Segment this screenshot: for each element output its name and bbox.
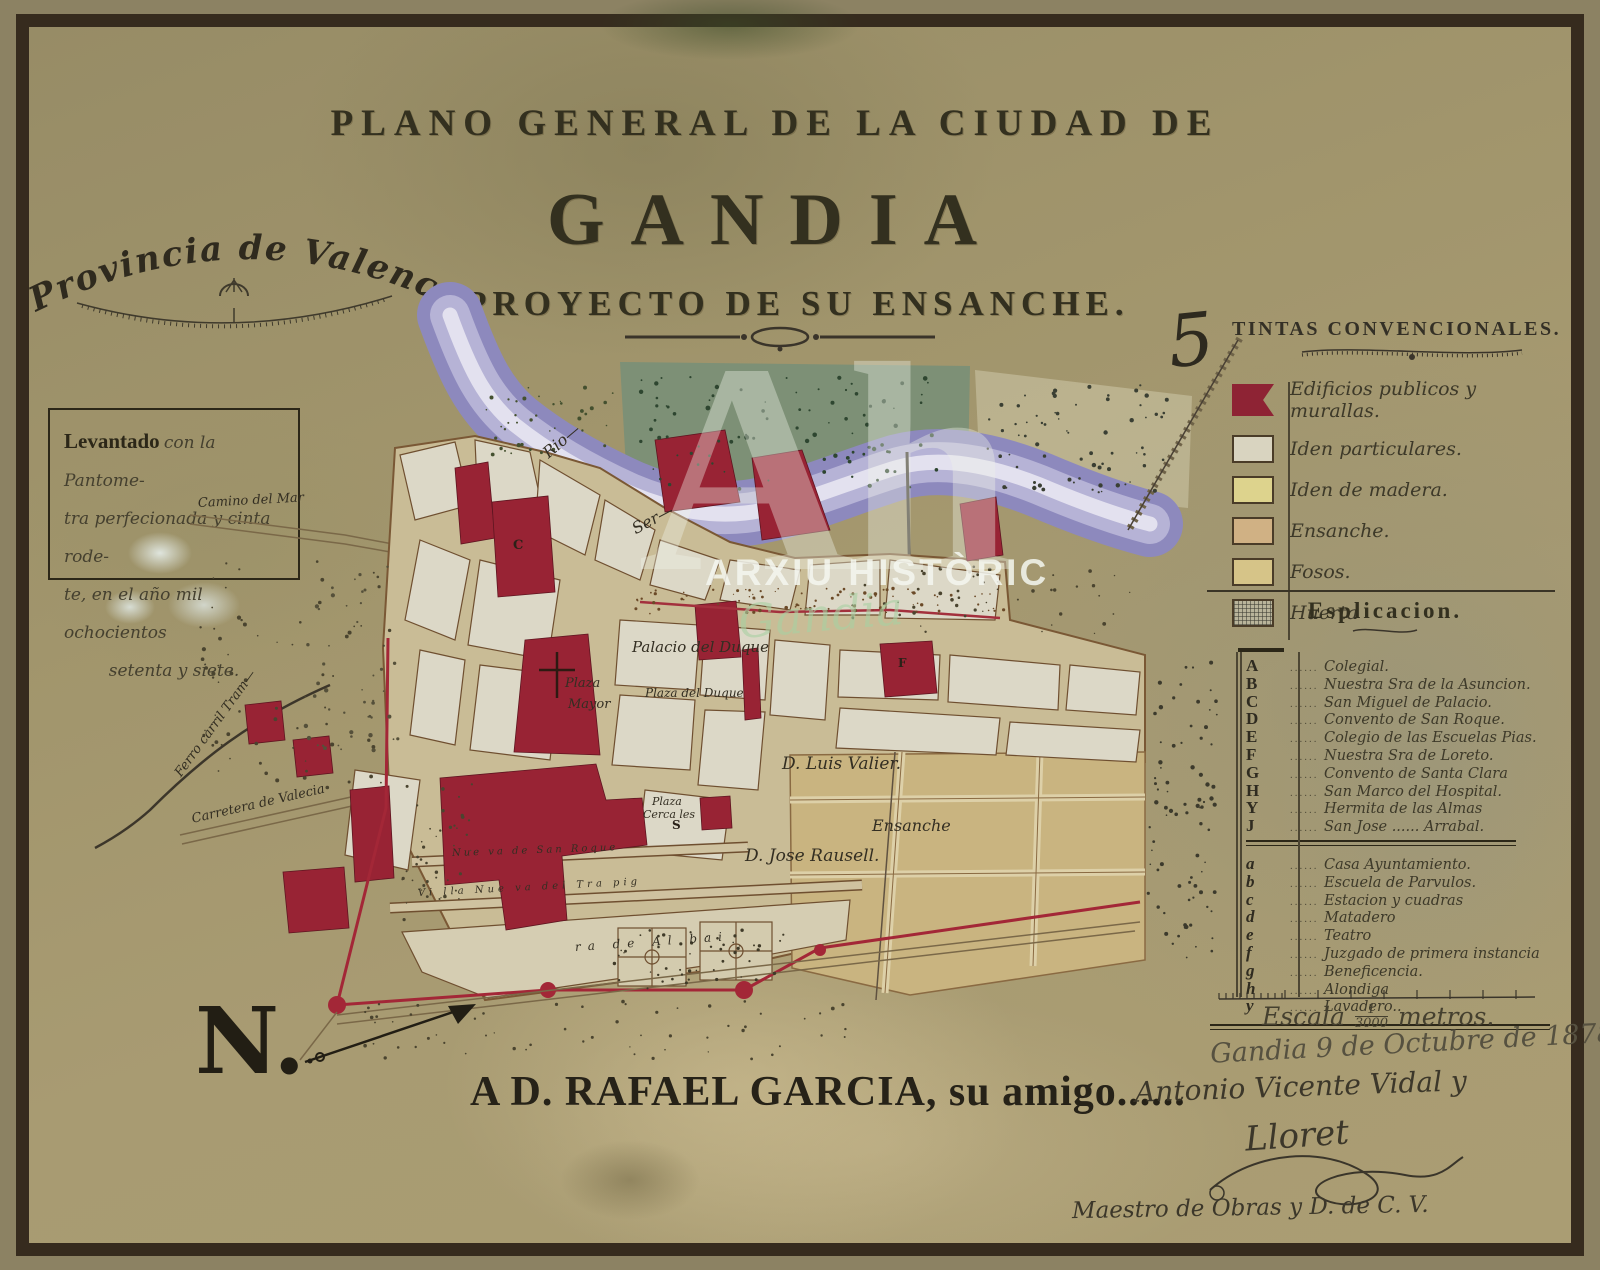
ensanche-grid [790, 752, 1145, 1000]
label-plaza-cerca-1: Plaza [652, 795, 682, 808]
scale-word: Escala [1262, 1002, 1345, 1031]
label-plaza: Plaza [565, 676, 600, 691]
explanation-panel: Esplicacion. A......Colegial. B......Nue… [1210, 598, 1560, 1030]
exp-label: Hermita de las Almas [1324, 801, 1482, 817]
label-plaza-del-duque: Plaza del Duque [645, 686, 744, 700]
scale-fraction-top: 1 [1367, 1003, 1375, 1016]
label-ensanche: Ensanche [872, 816, 951, 835]
explanation-top-rule [1207, 590, 1555, 592]
exp-label: Convento de Santa Clara [1324, 766, 1508, 782]
legend-item-label: Fosos. [1290, 561, 1351, 583]
exp-label: Casa Ayuntamiento. [1324, 857, 1471, 873]
exp-label: Juzgado de primera instancia [1324, 946, 1540, 962]
exp-label: Teatro [1324, 928, 1371, 944]
exp-label: San Miguel de Palacio. [1324, 695, 1492, 711]
exp-label: San Marco del Hospital. [1324, 784, 1502, 800]
exp-key: J [1246, 816, 1290, 836]
swatch-edificios [1232, 384, 1274, 416]
exp-label: Colegio de las Escuelas Pias. [1324, 730, 1537, 746]
building-letter-s: S [672, 818, 681, 832]
label-jose-rausell: D. Jose Rausell. [745, 846, 879, 866]
list-ornament-bar [1238, 648, 1284, 652]
legend-item-label: Ensanche. [1290, 520, 1390, 542]
map-title-line1: PLANO GENERAL DE LA CIUDAD DE [140, 102, 1410, 145]
exp-label: Nuestra Sra de Loreto. [1324, 748, 1493, 764]
legend-flourish [1297, 343, 1527, 361]
explanation-flourish [1350, 625, 1420, 637]
exp-label: Nuestra Sra de la Asuncion. [1324, 677, 1531, 693]
label-mayor: Mayor [568, 697, 610, 712]
rule [1236, 652, 1238, 997]
swatch-fosos [1232, 558, 1274, 586]
explanation-title: Esplicacion. [1210, 598, 1560, 624]
rule [1240, 652, 1242, 997]
building-letter-f: F [898, 656, 907, 670]
rule [1298, 652, 1300, 997]
exp-label: Estacion y cuadras [1324, 893, 1463, 909]
scale-fraction-bottom: 3000 [1355, 1016, 1388, 1030]
exp-label: Matadero [1324, 910, 1396, 926]
exp-label: San Jose ...... Arrabal. [1324, 819, 1484, 835]
legend-item-label: Iden de madera. [1290, 479, 1448, 501]
framed-map-photo: PLANO GENERAL DE LA CIUDAD DE GANDIA Y P… [0, 0, 1600, 1270]
label-luis-valier: D. Luis Valier. [782, 754, 901, 774]
swatch-ensanche [1232, 517, 1274, 545]
exp-label: Convento de San Roque. [1324, 712, 1505, 728]
double-rule [1246, 840, 1516, 846]
label-plaza-cerca-2: Cerca les [643, 808, 695, 821]
swatch-particulares [1232, 435, 1274, 463]
exp-label: Beneficencia. [1324, 964, 1423, 980]
legend-ornament-numeral: 5 [1164, 296, 1218, 384]
swatch-madera [1232, 476, 1274, 504]
exp-label: Colegial. [1324, 659, 1389, 675]
exp-label: Escuela de Parvulos. [1324, 875, 1476, 891]
building-letter-c: C [513, 538, 523, 553]
legend-item-label: Iden particulares. [1290, 438, 1462, 460]
label-palacio-del-duque: Palacio del Duque [632, 638, 769, 656]
legend-tintas: TINTAS CONVENCIONALES. Edificios publico… [1232, 318, 1572, 640]
legend-title: TINTAS CONVENCIONALES. [1232, 318, 1572, 341]
legend-item-label: Edificios publicos y murallas. [1290, 378, 1572, 422]
north-arrow-icon [280, 980, 500, 1070]
dedication-text: A D. RAFAEL GARCIA, su amigo...... [470, 1068, 1186, 1116]
